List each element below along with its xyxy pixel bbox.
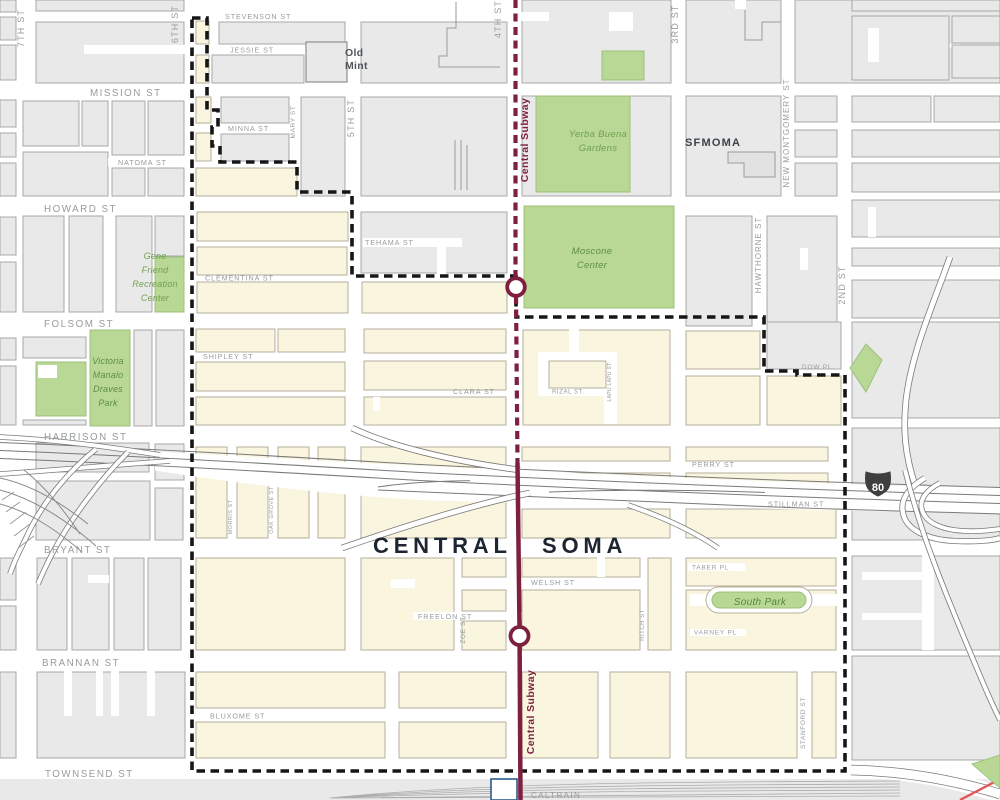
svg-text:Friend: Friend — [142, 265, 170, 275]
svg-text:6TH ST: 6TH ST — [170, 5, 180, 43]
svg-text:Gene: Gene — [144, 251, 167, 261]
svg-text:LAPU LAPU ST: LAPU LAPU ST — [607, 363, 613, 402]
svg-text:STANFORD ST: STANFORD ST — [800, 697, 807, 749]
svg-text:Draves: Draves — [93, 384, 123, 394]
svg-text:CLEMENTINA ST: CLEMENTINA ST — [205, 274, 274, 283]
svg-text:TEHAMA ST: TEHAMA ST — [365, 238, 414, 247]
svg-text:DOW PL: DOW PL — [802, 364, 832, 371]
svg-text:Gardens: Gardens — [579, 143, 618, 154]
svg-text:FOLSOM ST: FOLSOM ST — [44, 319, 114, 330]
svg-text:7TH ST: 7TH ST — [16, 9, 26, 47]
svg-text:MINNA ST: MINNA ST — [228, 124, 269, 133]
svg-text:NATOMA ST: NATOMA ST — [118, 158, 167, 167]
svg-text:MARY ST: MARY ST — [290, 106, 297, 139]
svg-text:Central Subway: Central Subway — [519, 98, 531, 182]
svg-text:Recreation: Recreation — [132, 279, 178, 289]
svg-text:SOMA: SOMA — [542, 533, 627, 558]
svg-text:Yerba Buena: Yerba Buena — [569, 129, 627, 140]
svg-text:SHIPLEY ST: SHIPLEY ST — [203, 352, 253, 361]
svg-text:ZOE ST: ZOE ST — [460, 616, 467, 643]
svg-text:HOWARD ST: HOWARD ST — [44, 204, 117, 215]
svg-text:STILLMAN ST: STILLMAN ST — [768, 500, 824, 509]
svg-text:VARNEY PL: VARNEY PL — [694, 630, 737, 637]
svg-text:MORRIS ST: MORRIS ST — [228, 499, 234, 534]
svg-text:PERRY ST: PERRY ST — [692, 460, 735, 469]
svg-text:WELSH ST: WELSH ST — [531, 578, 575, 587]
svg-text:BRYANT ST: BRYANT ST — [44, 545, 111, 556]
svg-text:Moscone: Moscone — [572, 246, 613, 257]
svg-text:80: 80 — [872, 482, 884, 494]
svg-text:BRANNAN ST: BRANNAN ST — [42, 658, 120, 669]
svg-text:3RD ST: 3RD ST — [670, 4, 680, 43]
svg-text:OAK GROVE ST: OAK GROVE ST — [269, 486, 275, 534]
svg-text:CENTRAL: CENTRAL — [373, 533, 512, 558]
svg-text:Central Subway: Central Subway — [525, 670, 537, 754]
svg-text:RIZAL ST: RIZAL ST — [552, 390, 583, 396]
svg-text:Center: Center — [577, 260, 608, 271]
svg-text:Park: Park — [98, 398, 118, 408]
svg-text:TOWNSEND ST: TOWNSEND ST — [45, 769, 134, 780]
svg-text:HARRISON ST: HARRISON ST — [44, 432, 127, 443]
svg-text:STEVENSON ST: STEVENSON ST — [225, 12, 291, 21]
svg-text:HAWTHORNE ST: HAWTHORNE ST — [754, 217, 763, 294]
svg-text:BLUXOME ST: BLUXOME ST — [210, 712, 265, 721]
svg-text:South Park: South Park — [734, 597, 787, 608]
svg-text:Center: Center — [141, 293, 170, 303]
svg-text:NEW MONTGOMERY ST: NEW MONTGOMERY ST — [782, 78, 791, 187]
svg-text:5TH ST: 5TH ST — [346, 99, 356, 137]
svg-text:JESSIE ST: JESSIE ST — [230, 46, 274, 55]
svg-text:2ND ST: 2ND ST — [837, 265, 847, 304]
svg-text:Manalo: Manalo — [93, 370, 124, 380]
svg-text:Old: Old — [345, 47, 363, 59]
svg-text:TABER PL: TABER PL — [692, 565, 729, 572]
svg-text:MISSION ST: MISSION ST — [90, 88, 162, 99]
svg-text:CLARA ST: CLARA ST — [453, 387, 495, 396]
svg-text:SFMOMA: SFMOMA — [685, 137, 741, 149]
svg-text:RITCH ST: RITCH ST — [640, 609, 646, 641]
svg-text:4TH ST: 4TH ST — [493, 0, 503, 38]
svg-text:Mint: Mint — [345, 60, 368, 72]
svg-text:CALTRAIN: CALTRAIN — [531, 791, 581, 800]
svg-text:Victoria: Victoria — [92, 356, 123, 366]
